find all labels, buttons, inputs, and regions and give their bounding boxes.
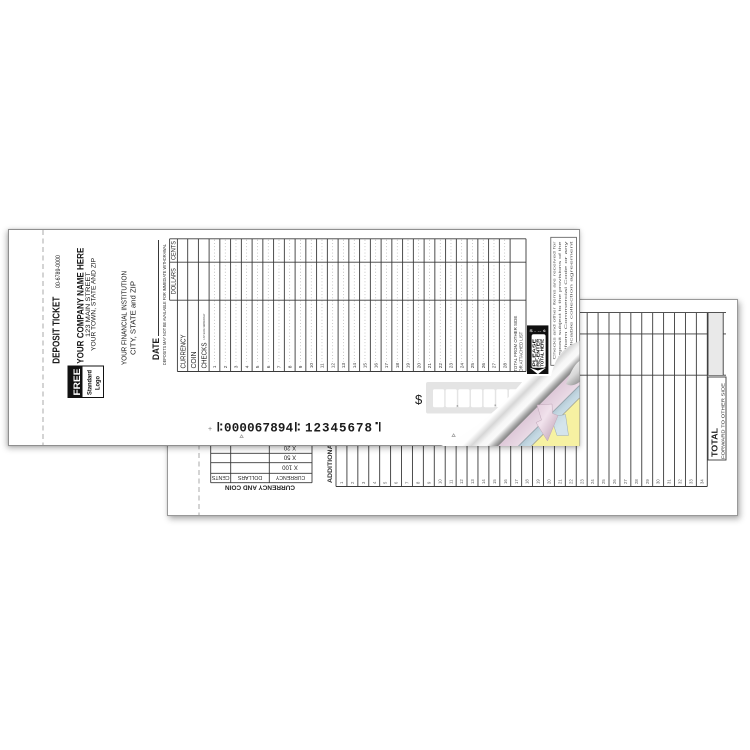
svg-text:Checks and other items are rec: Checks and other items are received for — [552, 240, 557, 359]
svg-text:CENTS: CENTS — [211, 474, 229, 480]
svg-text:TOTAL: TOTAL — [710, 428, 720, 457]
svg-text:20: 20 — [547, 479, 552, 484]
svg-text:6: 6 — [266, 365, 272, 368]
svg-text:3: 3 — [234, 365, 240, 368]
svg-text:25: 25 — [470, 363, 476, 369]
svg-text:2: 2 — [223, 365, 229, 368]
svg-text:22: 22 — [568, 479, 573, 484]
svg-text:11: 11 — [320, 363, 326, 368]
svg-text:22: 22 — [438, 363, 444, 369]
svg-text:13: 13 — [341, 363, 347, 369]
svg-text:19: 19 — [406, 363, 412, 369]
svg-text:18: 18 — [395, 363, 401, 369]
svg-text:16: 16 — [503, 479, 508, 484]
svg-text:10: 10 — [309, 363, 315, 369]
svg-text:13: 13 — [470, 479, 475, 484]
svg-text:DEPOSITS MAY NOT BE AVAILABLE: DEPOSITS MAY NOT BE AVAILABLE FOR IMMEDI… — [162, 243, 167, 365]
svg-text:Logo: Logo — [95, 376, 102, 390]
svg-text:21: 21 — [557, 479, 562, 484]
svg-text:33: 33 — [689, 479, 694, 484]
svg-text:applicable collection agreemen: applicable collection agreement — [568, 240, 573, 360]
svg-text:YOUR FINANCIAL INSTITUTION: YOUR FINANCIAL INSTITUTION — [122, 271, 129, 365]
svg-text:5: 5 — [255, 365, 261, 368]
svg-text:deposit subject to the provisi: deposit subject to the provisions of the — [557, 240, 562, 359]
svg-text:00-6789-0000: 00-6789-0000 — [55, 255, 62, 288]
svg-text:CHECKS: CHECKS — [202, 342, 209, 368]
svg-text:YOUR TOWN, STATE AND ZIP: YOUR TOWN, STATE AND ZIP — [91, 257, 98, 350]
svg-text:23: 23 — [579, 479, 584, 484]
svg-text:DEPOSIT TICKET: DEPOSIT TICKET — [52, 297, 63, 364]
svg-text:12: 12 — [330, 363, 336, 369]
svg-text:FREE: FREE — [72, 369, 83, 396]
svg-text:CURRENCY: CURRENCY — [180, 334, 187, 368]
svg-text:12345678: 12345678 — [305, 422, 373, 436]
svg-text:28: 28 — [634, 479, 639, 484]
svg-text:32: 32 — [678, 479, 683, 484]
svg-text:26: 26 — [481, 363, 487, 369]
svg-text:34: 34 — [699, 479, 704, 484]
svg-text:TOTAL FROM OTHER SIDE: TOTAL FROM OTHER SIDE — [513, 316, 518, 372]
svg-text:14: 14 — [481, 479, 486, 484]
svg-text:8: 8 — [287, 365, 293, 368]
svg-text:Standard: Standard — [87, 370, 94, 395]
svg-text:10: 10 — [437, 479, 442, 484]
svg-text:17: 17 — [384, 363, 390, 369]
svg-text:+: + — [208, 426, 212, 433]
svg-text:30: 30 — [656, 479, 661, 484]
svg-text:14: 14 — [352, 363, 358, 369]
svg-text:21: 21 — [427, 363, 433, 369]
svg-text:4: 4 — [244, 365, 250, 368]
svg-text:11: 11 — [448, 479, 453, 484]
svg-text:15: 15 — [492, 479, 497, 484]
svg-text:15: 15 — [363, 363, 369, 369]
svg-text:DOLLARS: DOLLARS — [237, 474, 262, 480]
svg-text:CURRENCY AND COIN: CURRENCY AND COIN — [225, 484, 295, 491]
svg-text:7: 7 — [277, 365, 283, 368]
svg-text:$ - -- ¢: $ - -- ¢ — [530, 329, 547, 333]
svg-text:LIST EACH SEPARATELY: LIST EACH SEPARATELY — [202, 313, 206, 339]
svg-text:DATE: DATE — [151, 338, 162, 360]
svg-text:27: 27 — [492, 363, 498, 369]
svg-text:31: 31 — [667, 479, 672, 484]
svg-text:28: 28 — [502, 363, 508, 369]
svg-text:9: 9 — [298, 365, 304, 368]
svg-text:19: 19 — [536, 479, 541, 484]
svg-text:FORWARD TO OTHER SIDE: FORWARD TO OTHER SIDE — [721, 383, 726, 459]
svg-text:DOLLARS: DOLLARS — [172, 268, 178, 294]
svg-text:25: 25 — [601, 479, 606, 484]
svg-text:X 100: X 100 — [282, 464, 298, 470]
svg-text:20: 20 — [416, 363, 422, 369]
svg-text:TOTAL HERE: TOTAL HERE — [540, 339, 545, 367]
svg-text:CURRENCY: CURRENCY — [275, 474, 305, 480]
svg-text:29: 29 — [645, 479, 650, 484]
svg-text:1: 1 — [212, 365, 218, 368]
svg-text:12: 12 — [459, 479, 464, 484]
svg-text:$: $ — [415, 392, 423, 407]
svg-text:COIN: COIN — [191, 352, 198, 369]
svg-text:17: 17 — [514, 479, 519, 484]
svg-text:000067894: 000067894 — [224, 422, 294, 436]
svg-text:26: 26 — [612, 479, 617, 484]
svg-text:24: 24 — [459, 363, 465, 369]
svg-text:16: 16 — [373, 363, 379, 369]
svg-text:Uniform Commercial Code or any: Uniform Commercial Code or any — [563, 242, 568, 360]
svg-text:CITY, STATE and ZIP: CITY, STATE and ZIP — [131, 281, 138, 355]
svg-text:OR ATTACHED LIST: OR ATTACHED LIST — [519, 331, 524, 371]
svg-text:CENTS: CENTS — [172, 241, 178, 260]
svg-text:24: 24 — [590, 479, 595, 484]
svg-text:18: 18 — [525, 479, 530, 484]
svg-text:23: 23 — [449, 363, 455, 369]
svg-text:X 50: X 50 — [283, 453, 296, 459]
svg-text:27: 27 — [623, 479, 628, 484]
